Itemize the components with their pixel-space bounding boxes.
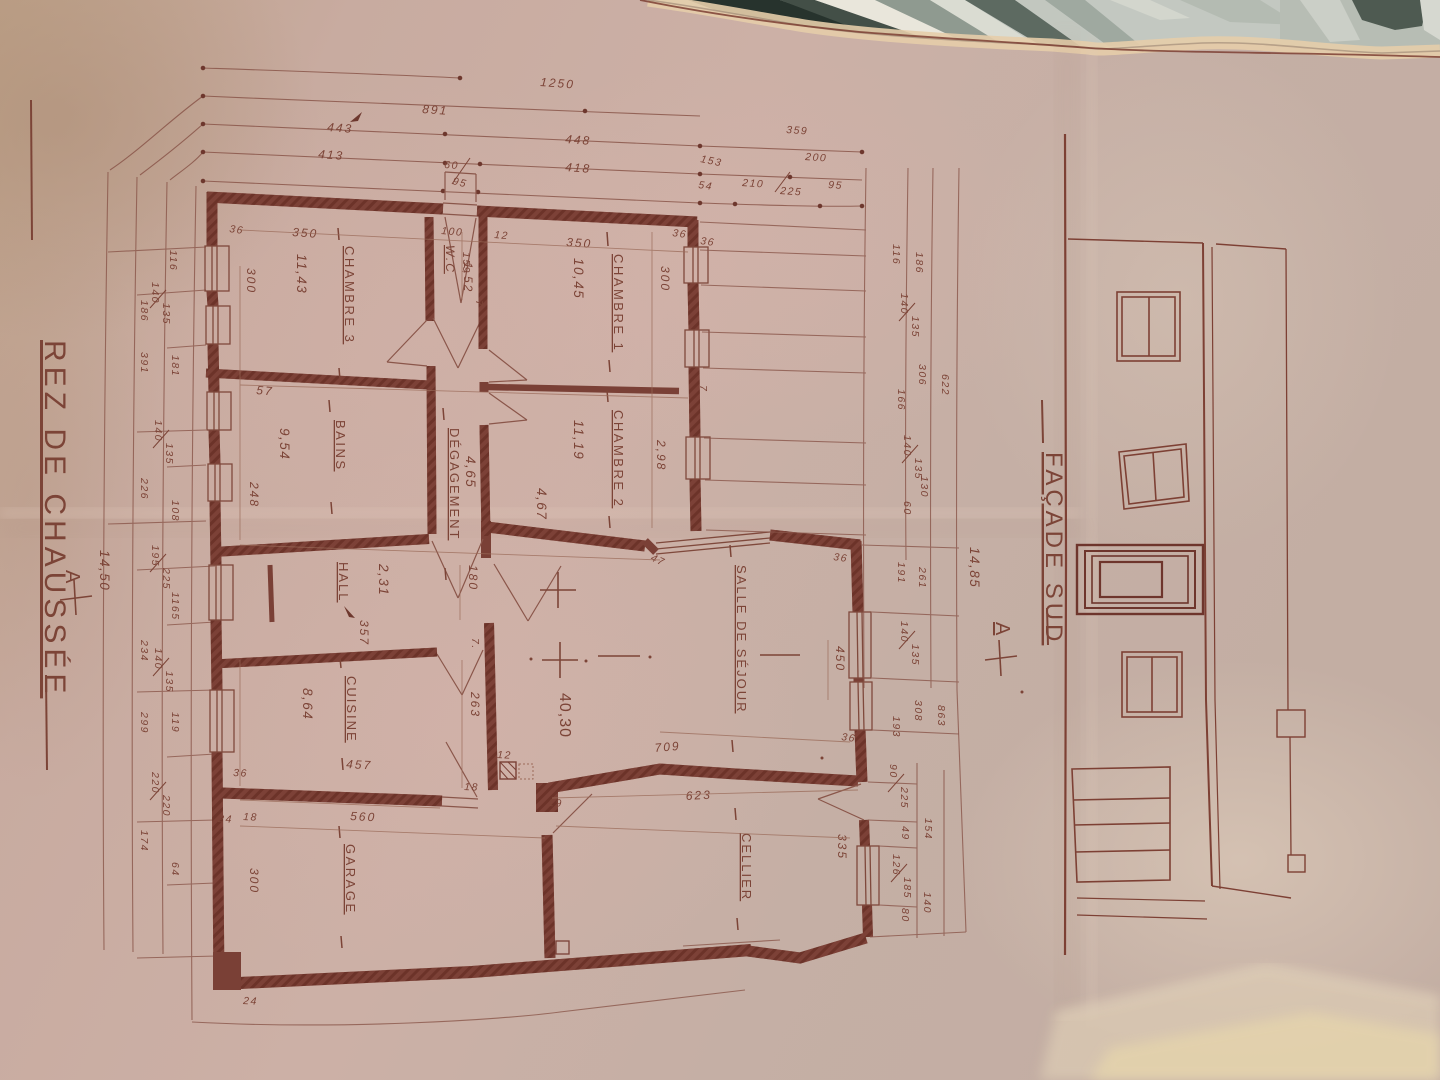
svg-text:418: 418 xyxy=(565,160,592,176)
svg-text:135: 135 xyxy=(909,644,921,666)
svg-text:180: 180 xyxy=(466,565,480,591)
svg-text:195: 195 xyxy=(149,545,161,567)
svg-text:200: 200 xyxy=(804,151,828,165)
svg-text:226: 226 xyxy=(138,477,150,500)
svg-text:1165: 1165 xyxy=(169,592,181,621)
svg-text:CHAMBRE 2: CHAMBRE 2 xyxy=(611,410,626,508)
svg-text:448: 448 xyxy=(565,132,592,148)
svg-text:300: 300 xyxy=(247,868,261,894)
svg-text:443: 443 xyxy=(327,120,354,136)
svg-text:40,30: 40,30 xyxy=(556,693,573,738)
svg-text:36: 36 xyxy=(672,227,688,241)
svg-text:60: 60 xyxy=(444,159,459,172)
svg-text:1250: 1250 xyxy=(540,75,576,91)
svg-text:2,31: 2,31 xyxy=(376,563,391,596)
svg-text:181: 181 xyxy=(169,355,181,377)
svg-text:36: 36 xyxy=(841,731,857,745)
svg-text:457: 457 xyxy=(346,757,373,772)
svg-text:225: 225 xyxy=(779,185,803,199)
svg-text:CELLIER: CELLIER xyxy=(739,833,754,901)
svg-text:12: 12 xyxy=(494,229,510,242)
svg-text:100: 100 xyxy=(441,225,464,239)
svg-text:CUISINE: CUISINE xyxy=(344,676,359,743)
svg-text:413: 413 xyxy=(318,147,345,163)
svg-text:300: 300 xyxy=(244,268,258,294)
svg-text:135: 135 xyxy=(909,316,921,338)
svg-text:A: A xyxy=(61,570,83,584)
svg-text:DÉGAGEMENT: DÉGAGEMENT xyxy=(447,428,462,540)
svg-text:891: 891 xyxy=(422,102,449,118)
svg-text:64: 64 xyxy=(169,862,181,877)
svg-text:210: 210 xyxy=(741,177,765,191)
svg-text:10,45: 10,45 xyxy=(571,258,586,299)
svg-text:CHAMBRE 1: CHAMBRE 1 xyxy=(611,254,626,352)
svg-text:90: 90 xyxy=(887,764,899,779)
svg-text:60: 60 xyxy=(901,501,913,516)
svg-text:306: 306 xyxy=(916,364,928,386)
svg-text:191: 191 xyxy=(895,562,907,584)
svg-text:234: 234 xyxy=(138,639,150,662)
svg-text:9,54: 9,54 xyxy=(277,428,292,460)
svg-text:220: 220 xyxy=(149,771,161,794)
svg-text:CHAMBRE 3: CHAMBRE 3 xyxy=(342,246,357,344)
svg-text:140: 140 xyxy=(898,293,910,315)
svg-text:357: 357 xyxy=(357,620,371,646)
svg-text:24: 24 xyxy=(217,813,233,826)
svg-text:130: 130 xyxy=(918,476,930,498)
svg-text:49: 49 xyxy=(899,826,911,841)
svg-text:18: 18 xyxy=(243,811,258,824)
svg-text:623: 623 xyxy=(685,788,712,803)
svg-text:GARAGE: GARAGE xyxy=(343,844,358,915)
svg-text:135: 135 xyxy=(160,303,172,325)
svg-text:REZ DE CHAUSSÉE: REZ DE CHAUSSÉE xyxy=(38,340,71,698)
svg-text:2,98: 2,98 xyxy=(654,439,668,471)
svg-text:166: 166 xyxy=(895,389,907,411)
svg-text:7.: 7. xyxy=(469,638,481,650)
svg-text:A: A xyxy=(991,622,1013,636)
svg-text:391: 391 xyxy=(138,352,150,374)
svg-text:220: 220 xyxy=(160,794,172,817)
svg-text:36: 36 xyxy=(833,551,849,565)
svg-text:W.C: W.C xyxy=(443,245,457,274)
svg-text:154: 154 xyxy=(922,818,934,840)
svg-text:300: 300 xyxy=(658,266,672,292)
svg-text:135: 135 xyxy=(163,671,175,693)
svg-text:14,85: 14,85 xyxy=(967,547,982,588)
svg-text:14,50: 14,50 xyxy=(97,550,112,591)
svg-text:4,67: 4,67 xyxy=(534,488,549,520)
svg-text:116: 116 xyxy=(890,244,902,265)
svg-text:263: 263 xyxy=(468,691,482,718)
svg-text:140: 140 xyxy=(152,648,164,670)
svg-text:108: 108 xyxy=(169,500,181,522)
svg-text:135: 135 xyxy=(163,443,175,465)
svg-text:248: 248 xyxy=(247,481,261,508)
svg-text:225: 225 xyxy=(160,567,172,590)
svg-text:126: 126 xyxy=(890,854,902,876)
svg-text:193: 193 xyxy=(890,716,902,738)
svg-text:299: 299 xyxy=(138,711,150,734)
svg-text:119: 119 xyxy=(169,712,181,733)
svg-text:261: 261 xyxy=(916,566,928,589)
svg-text:709: 709 xyxy=(654,739,681,755)
svg-text:140: 140 xyxy=(921,892,933,914)
svg-text:560: 560 xyxy=(350,809,377,824)
svg-text:12: 12 xyxy=(497,749,512,762)
svg-text:140: 140 xyxy=(152,420,164,442)
svg-text:308: 308 xyxy=(912,700,924,722)
svg-text:36: 36 xyxy=(233,767,248,780)
svg-text:450: 450 xyxy=(833,646,847,672)
svg-text:359: 359 xyxy=(786,124,809,138)
svg-text:863: 863 xyxy=(935,705,947,727)
svg-text:186: 186 xyxy=(138,300,150,322)
svg-text:BAINS: BAINS xyxy=(333,420,348,472)
svg-text:174: 174 xyxy=(138,830,150,852)
svg-text:80: 80 xyxy=(899,908,911,923)
svg-text:18: 18 xyxy=(464,781,479,794)
svg-text:24: 24 xyxy=(242,995,258,1008)
svg-text:1,52: 1,52 xyxy=(461,262,475,293)
svg-text:FAÇADE SUD: FAÇADE SUD xyxy=(1040,452,1067,645)
svg-text:7: 7 xyxy=(697,385,709,392)
svg-text:19: 19 xyxy=(548,797,563,810)
svg-text:186: 186 xyxy=(913,252,925,274)
svg-text:185: 185 xyxy=(901,877,913,899)
svg-text:4,65: 4,65 xyxy=(463,456,478,488)
svg-text:350: 350 xyxy=(566,235,593,251)
svg-text:HALL: HALL xyxy=(336,562,351,603)
svg-text:116: 116 xyxy=(167,250,179,271)
svg-text:7: 7 xyxy=(473,300,485,307)
svg-text:95: 95 xyxy=(828,179,843,192)
svg-text:140: 140 xyxy=(898,621,910,643)
svg-text:SALLE DE SÉJOUR: SALLE DE SÉJOUR xyxy=(734,565,749,714)
svg-text:54: 54 xyxy=(698,179,714,193)
svg-text:8,64: 8,64 xyxy=(300,688,315,720)
svg-text:11,43: 11,43 xyxy=(294,254,309,294)
svg-text:225: 225 xyxy=(898,786,910,809)
svg-text:622: 622 xyxy=(939,374,951,396)
svg-text:140: 140 xyxy=(901,435,913,457)
svg-text:11,19: 11,19 xyxy=(571,420,586,460)
svg-text:36: 36 xyxy=(700,235,716,249)
